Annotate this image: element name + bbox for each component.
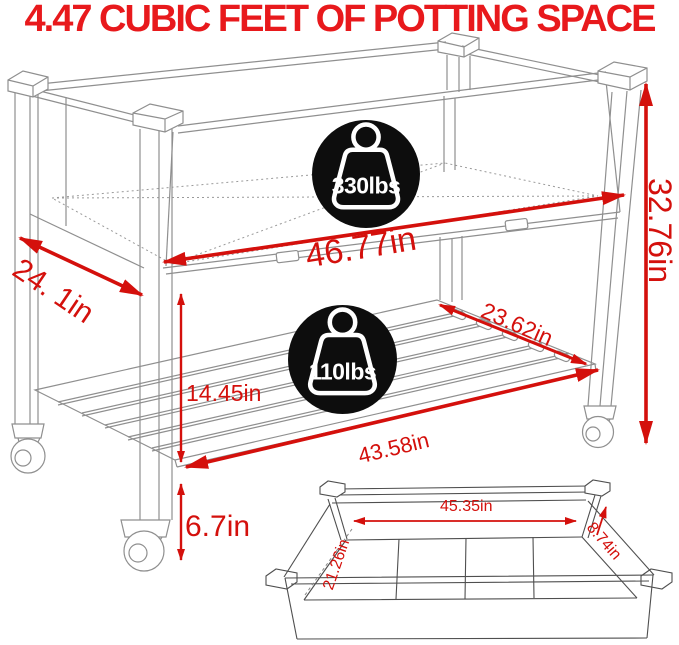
product-dimension-diagram: 4.47 CUBIC FEET OF POTTING SPACE <box>0 0 679 645</box>
dim-label-ground-clearance: 6.7in <box>185 512 250 542</box>
weight-capacity-badge-top: 330lbs <box>312 120 420 228</box>
shelf-capacity-label: 110lbs <box>288 359 397 386</box>
weight-capacity-badge-shelf: 110lbs <box>288 305 397 414</box>
dim-label-inset-length: 45.35in <box>440 499 493 515</box>
post-caps <box>8 33 647 132</box>
caster-wheels <box>11 406 616 571</box>
dim-label-bin-to-shelf: 14.45in <box>186 382 261 405</box>
top-capacity-label: 330lbs <box>312 173 420 200</box>
dim-label-overall-height: 32.76in <box>644 178 676 283</box>
